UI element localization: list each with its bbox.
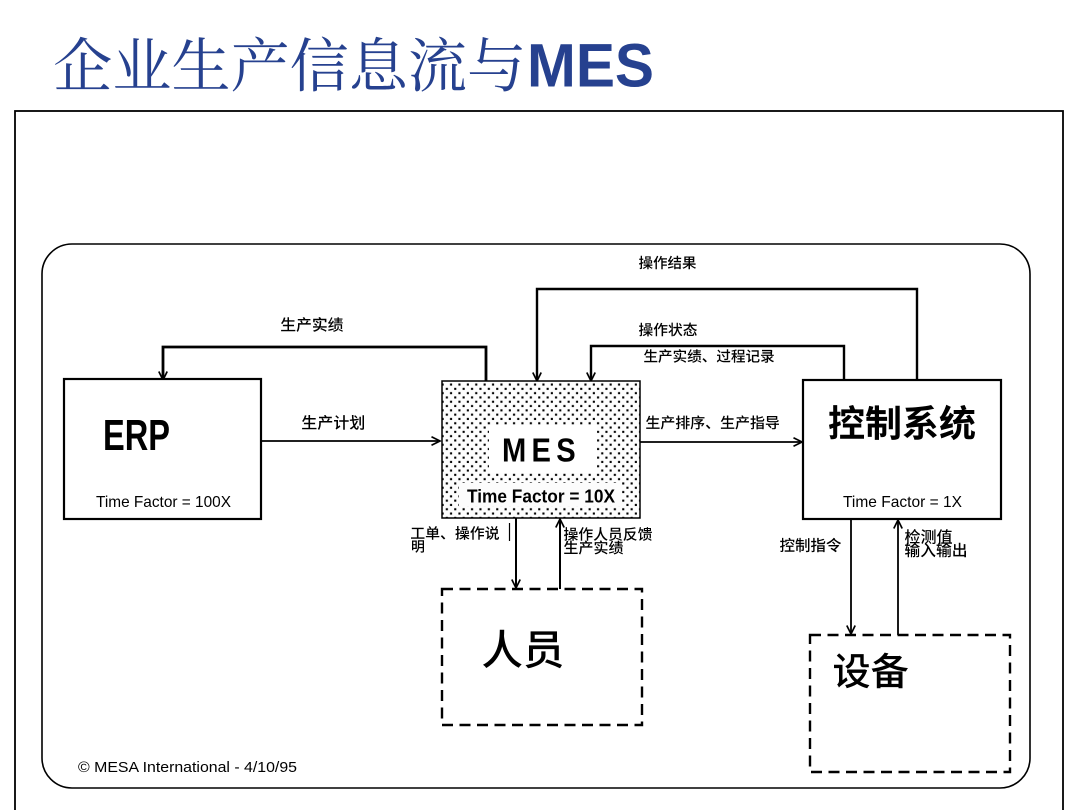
- svg-text:MES: MES: [502, 432, 581, 469]
- svg-text:Time Factor = 1X: Time Factor = 1X: [843, 494, 962, 511]
- svg-text:Time Factor = 10X: Time Factor = 10X: [467, 487, 615, 507]
- svg-text:MES: MES: [527, 32, 654, 100]
- svg-text:Time Factor = 100X: Time Factor = 100X: [96, 494, 231, 511]
- svg-text:© MESA International - 4/10/95: © MESA International - 4/10/95: [78, 759, 297, 776]
- svg-text:ERP: ERP: [103, 411, 170, 460]
